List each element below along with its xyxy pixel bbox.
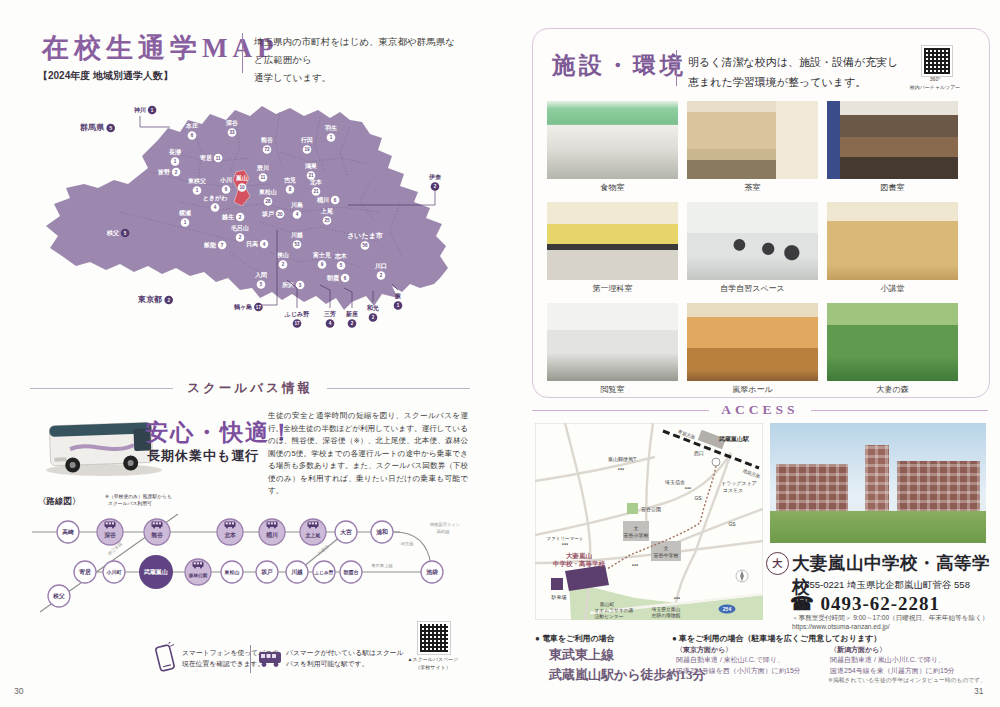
station-大宮: 大宮: [335, 521, 357, 543]
facility-photo-2: [687, 101, 818, 179]
facility-cell-9: 大妻の森: [827, 303, 958, 395]
access-map-label: 菅谷公園: [641, 506, 661, 513]
svg-text:越生: 越生: [221, 213, 235, 221]
access-header: ACCESS: [532, 402, 988, 418]
facility-cell-4: 第一理科室: [547, 202, 678, 294]
car-tokyo-line1: 関越自動車道 / 東松山I.C.で降り、: [676, 656, 784, 663]
page-number-left: 30: [14, 686, 23, 696]
svg-text:ふじみ野: ふじみ野: [284, 310, 309, 318]
svg-text:5: 5: [109, 126, 112, 131]
school-address: 〒 355-0221 埼玉県比企郡嵐山町菅谷 558: [792, 579, 970, 592]
car-niigata-line1: 関越自動車道 / 嵐山小川I.C.で降り、: [830, 656, 945, 663]
svg-text:東京都: 東京都: [137, 295, 162, 304]
svg-text:狭山: 狭山: [276, 251, 289, 258]
svg-text:嵐山: 嵐山: [235, 174, 248, 181]
access-map-label: ドラッグストア: [721, 480, 757, 486]
svg-text:6: 6: [334, 198, 337, 203]
office-hours: ＜事務室受付時間＞ 9:00～17:00（日曜祝日、年末年始等を除く）: [792, 614, 988, 623]
access-map-label: 嵐山町: [600, 601, 615, 607]
saitama-outline: [46, 106, 448, 310]
svg-text:2: 2: [351, 321, 354, 326]
svg-text:飯能: 飯能: [203, 241, 217, 249]
facility-caption: 自学自習スペース: [687, 283, 818, 294]
access-map-label: オオムラサキの森: [594, 608, 633, 613]
facility-title: 施設・環境: [552, 50, 687, 81]
access-map-label: 文: [664, 545, 669, 551]
access-map: 寄居方面武蔵嵐山駅西口池袋方面嵐山郵便局〒●●●埼玉信金●●●ドラッグストアコス…: [535, 423, 763, 620]
svg-text:2: 2: [434, 184, 437, 189]
svg-text:川口: 川口: [374, 262, 387, 270]
facility-cell-2: 茶室: [687, 101, 818, 193]
svg-text:浦和: 浦和: [375, 528, 388, 536]
facility-cell-1: 食物室: [547, 101, 678, 193]
svg-text:21: 21: [308, 173, 314, 178]
station-小川町: 小川町: [103, 561, 125, 583]
svg-text:7: 7: [221, 243, 224, 248]
svg-text:伊奈: 伊奈: [428, 174, 442, 181]
svg-text:熊谷: 熊谷: [261, 136, 273, 144]
svg-text:深谷: 深谷: [103, 532, 116, 539]
svg-text:川越線: 川越線: [316, 543, 330, 556]
station-北本: 北本: [217, 519, 243, 545]
station-川越: 川越: [286, 561, 308, 583]
facility-photo-6: [827, 202, 958, 280]
facility-grid: 食物室茶室図書室第一理科室自学自習スペース小講堂閲覧室嵐翠ホール大妻の森: [547, 101, 958, 395]
interview-footnote: ※掲載されている生徒の学年はインタビュー時のものです。: [700, 676, 986, 685]
station-寄居: 寄居: [74, 561, 96, 583]
school-building-photo: [770, 423, 986, 543]
title-divider: [242, 33, 243, 73]
facility-caption: 茶室: [687, 182, 818, 193]
svg-text:和光: 和光: [366, 304, 379, 312]
intro-line2: 通学しています。: [254, 72, 331, 83]
access-map-label: 文: [634, 525, 639, 531]
access-map-label: 嵐山郵便局〒: [608, 456, 638, 463]
svg-text:19: 19: [304, 147, 310, 152]
page-title: 在校生通学MAP: [42, 30, 278, 66]
station-高崎: 高崎: [57, 521, 79, 543]
svg-text:池袋: 池袋: [425, 569, 438, 576]
svg-text:小川町: 小川町: [106, 569, 122, 576]
vt-caption2: 校内バーチャルツアー: [910, 84, 961, 90]
svg-text:20: 20: [278, 212, 284, 217]
facility-caption: 嵐翠ホール: [687, 384, 818, 395]
intro-text: 埼玉県内の市町村をはじめ、東京都や群馬県など広範囲から 通学しています。: [254, 33, 464, 87]
svg-text:小川: 小川: [219, 176, 232, 184]
svg-text:羽生: 羽生: [324, 124, 338, 131]
svg-text:富士見: 富士見: [313, 251, 331, 259]
svg-text:さいたま市: さいたま市: [347, 231, 383, 240]
svg-text:4: 4: [263, 242, 266, 247]
facility-cell-7: 閲覧室: [547, 303, 678, 395]
svg-text:東松山: 東松山: [224, 569, 240, 575]
svg-text:朝霞台: 朝霞台: [343, 569, 359, 576]
access-map-label: 菅谷小学校: [624, 532, 649, 539]
svg-text:4: 4: [296, 212, 299, 217]
map-region-東京都: 東京都2: [137, 295, 173, 304]
intro-line1: 埼玉県内の市町村をはじめ、東京都や群馬県など広範囲から: [254, 36, 455, 65]
access-map-label: 254: [723, 606, 732, 612]
school-logo: 大: [766, 552, 789, 575]
svg-text:蕨: 蕨: [394, 292, 401, 300]
access-map-label: 大妻嵐山: [566, 552, 593, 560]
svg-text:5: 5: [260, 282, 263, 287]
map-subtitle: 【2024年度 地域別通学人数】: [38, 69, 173, 83]
car-tokyo-line2: 国道254号線を西（小川方面）に約15分: [676, 667, 801, 674]
svg-text:スクールバス利用可: スクールバス利用可: [108, 501, 152, 507]
access-map-label: ●●●: [562, 542, 568, 546]
qr-caption-line1: ▲スクールバスページ: [408, 656, 459, 662]
svg-text:5: 5: [124, 231, 127, 236]
svg-text:吉見: 吉見: [284, 176, 296, 184]
access-map-label: ●●●: [674, 596, 680, 600]
facility-lead2: 恵まれた学習環境が整っています。: [688, 76, 866, 88]
svg-text:秩父: 秩父: [52, 593, 65, 600]
map-region-群馬県: 群馬県5: [79, 123, 115, 132]
svg-text:33: 33: [229, 130, 235, 135]
svg-text:川島: 川島: [290, 201, 303, 209]
svg-text:53: 53: [294, 242, 300, 247]
svg-text:川越: 川越: [290, 569, 303, 576]
svg-text:武蔵嵐山: 武蔵嵐山: [143, 568, 168, 575]
access-map-label: 駐車場: [551, 594, 567, 601]
facility-cell-6: 小講堂: [827, 202, 958, 294]
vt-caption1: 360°: [930, 76, 940, 82]
busmark-icon: [258, 650, 282, 668]
virtual-tour-qr-code: [922, 46, 952, 76]
facility-lead: 明るく清潔な校内は、施設・設備が充実し 恵まれた学習環境が整っています。: [688, 52, 918, 93]
car-from-niigata: 〈新潟方面から〉 関越自動車道 / 嵐山小川I.C.で降り、 国道254号線を東…: [830, 645, 955, 677]
train-heading: ● 電車をご利用の場合: [535, 633, 615, 644]
bus-description: 生徒の安全と通学時間の短縮を図り、スクールバスを運行。全校生徒の半数ほどが利用し…: [268, 410, 468, 498]
svg-text:坂戸: 坂戸: [260, 568, 273, 575]
svg-text:森林公園: 森林公園: [188, 572, 208, 579]
svg-text:2: 2: [167, 298, 170, 303]
station-東松山: 東松山: [221, 561, 243, 583]
car-niigata-label: 〈新潟方面から〉: [830, 645, 955, 655]
facility-cell-3: 図書室: [827, 101, 958, 193]
svg-text:2: 2: [380, 273, 383, 278]
access-map-label: ●●●: [685, 486, 691, 490]
svg-text:所沢: 所沢: [281, 281, 294, 288]
facility-photo-8: [687, 303, 818, 381]
facility-photo-3: [827, 101, 958, 179]
svg-text:滑川: 滑川: [256, 164, 269, 172]
svg-text:秩父: 秩父: [106, 229, 120, 237]
schoolbus-qr-code: [418, 622, 450, 654]
station-森林公園: 森林公園: [185, 559, 211, 585]
facility-caption: 大妻の森: [827, 384, 958, 395]
commute-map: 群馬県5神川1本庄6深谷33熊谷72行田19羽生1鴻巣21長瀞1寄居11皆野2東…: [30, 92, 470, 372]
access-map-label: GS: [694, 495, 702, 501]
access-title: ACCESS: [721, 402, 798, 418]
svg-text:2: 2: [239, 235, 242, 240]
svg-text:深谷: 深谷: [225, 119, 238, 127]
map-region-神川: 神川1: [133, 106, 170, 127]
station-熊谷: 熊谷: [144, 519, 170, 545]
facility-caption: 食物室: [547, 182, 678, 193]
svg-text:1: 1: [196, 188, 199, 193]
svg-text:10: 10: [239, 185, 245, 190]
svg-text:熊谷: 熊谷: [151, 531, 163, 539]
station-坂戸: 坂戸: [256, 561, 278, 583]
brochure-spread: { "page_left": { "page_number": "30", "t…: [0, 0, 1000, 707]
svg-text:2: 2: [175, 170, 178, 175]
svg-text:21: 21: [313, 189, 319, 194]
facility-caption: 第一理科室: [547, 283, 678, 294]
svg-text:北本: 北本: [309, 178, 322, 186]
svg-text:桶川: 桶川: [316, 196, 329, 204]
svg-text:6: 6: [344, 276, 347, 281]
svg-text:北本: 北本: [223, 532, 236, 539]
station-ふじみ野: ふじみ野: [313, 561, 335, 583]
svg-text:行田: 行田: [300, 136, 313, 144]
schoolbus-qr-caption: ▲スクールバスページ （学校サイト）: [398, 656, 468, 671]
svg-text:東松山: 東松山: [258, 188, 277, 195]
bus-subcatch: 長期休業中も運行: [147, 447, 259, 465]
access-map-label: 武蔵嵐山駅: [718, 435, 750, 443]
svg-text:ふじみ野: ふじみ野: [314, 569, 334, 576]
svg-text:神川: 神川: [133, 106, 146, 113]
facility-caption: 小講堂: [827, 283, 958, 294]
station-朝霞台: 朝霞台: [340, 561, 362, 583]
station-池袋: 池袋: [421, 561, 443, 583]
svg-text:坂戸: 坂戸: [261, 210, 274, 217]
svg-text:埼京線: 埼京線: [400, 541, 415, 546]
access-map-label: 史跡の博物館: [652, 612, 681, 619]
svg-text:本庄: 本庄: [185, 122, 198, 129]
svg-text:朝霞: 朝霞: [326, 274, 339, 282]
facility-photo-4: [547, 202, 678, 280]
bus-section-header: スクールバス情報: [30, 380, 470, 397]
svg-text:1: 1: [397, 303, 400, 308]
facility-lead1: 明るく清潔な校内は、施設・設備が充実し: [688, 56, 899, 68]
svg-text:5: 5: [340, 263, 343, 268]
svg-text:東武東上線: 東武東上線: [371, 563, 393, 568]
access-map-label: GS: [728, 521, 736, 527]
busmark-note: バスマークが付いている駅はスクールバスを利用可能な駅です。: [286, 648, 406, 670]
route-diagram: 〈路線図〉 ※（登校便のみ）籠原駅からも スクールバス利用可 高崎深谷熊谷北本桶…: [30, 488, 470, 628]
svg-text:鴻巣: 鴻巣: [304, 162, 317, 170]
svg-text:25: 25: [324, 218, 330, 223]
facility-cell-8: 嵐翠ホール: [687, 303, 818, 395]
facility-caption: 閲覧室: [547, 384, 678, 395]
svg-text:大宮: 大宮: [339, 528, 352, 536]
school-phone: ☎ 0493-62-2281: [790, 592, 940, 615]
school-url: https://www.otsuma-ranzan.ed.jp/: [792, 623, 890, 630]
access-map-label: ファミリーマート: [546, 536, 583, 541]
svg-text:4: 4: [329, 321, 332, 326]
facility-photo-7: [547, 303, 678, 381]
access-map-label: 埼玉信金: [664, 479, 685, 486]
qr-caption-line2: （学校サイト）: [415, 664, 450, 670]
svg-text:入間: 入間: [254, 271, 267, 279]
facility-photo-1: [547, 101, 678, 179]
svg-text:2: 2: [282, 262, 285, 267]
svg-text:17: 17: [294, 321, 300, 326]
svg-text:28: 28: [265, 199, 271, 204]
access-map-label: 西口: [694, 450, 704, 457]
svg-text:三芳: 三芳: [324, 310, 336, 318]
facility-divider: [676, 50, 677, 86]
svg-text:横瀬: 横瀬: [178, 209, 191, 217]
station-武蔵嵐山: 武蔵嵐山: [139, 555, 173, 589]
svg-text:1: 1: [330, 135, 333, 140]
car-niigata-line2: 国道254号線を東（川越方面）に約15分: [830, 667, 955, 674]
bus-section-title: スクールバス情報: [187, 380, 312, 397]
svg-text:高崎線: 高崎線: [437, 529, 451, 534]
access-map-label: 埼玉県立嵐山: [651, 606, 681, 612]
svg-text:17: 17: [256, 305, 262, 310]
svg-text:北上尾: 北上尾: [305, 532, 321, 539]
facility-photo-9: [827, 303, 958, 381]
svg-text:長瀞: 長瀞: [168, 148, 181, 156]
facility-caption: 図書室: [827, 182, 958, 193]
svg-text:志木: 志木: [334, 252, 347, 260]
svg-text:新座: 新座: [345, 310, 358, 318]
smartphone-icon: [152, 642, 178, 674]
access-map-label: 菅谷中学校: [654, 552, 679, 559]
svg-text:6: 6: [225, 187, 228, 192]
svg-text:9: 9: [321, 262, 324, 267]
virtual-tour-caption: 360° 校内バーチャルツアー: [897, 76, 973, 91]
svg-text:1: 1: [184, 220, 187, 225]
svg-text:東秩父: 東秩父: [187, 177, 207, 185]
svg-text:72: 72: [264, 147, 270, 152]
svg-text:3: 3: [299, 283, 302, 288]
svg-text:※（登校便のみ）籠原駅からも: ※（登校便のみ）籠原駅からも: [105, 493, 172, 500]
car-from-tokyo: 〈東京方面から〉 関越自動車道 / 東松山I.C.で降り、 国道254号線を西（…: [676, 645, 801, 677]
train-line: 東武東上線: [549, 647, 614, 662]
svg-text:桶川: 桶川: [265, 531, 278, 539]
svg-text:皆野: 皆野: [158, 168, 170, 176]
facility-cell-5: 自学自習スペース: [687, 202, 818, 294]
svg-text:56: 56: [362, 243, 368, 248]
station-北上尾: 北上尾: [300, 519, 326, 545]
svg-text:8: 8: [289, 187, 292, 192]
access-map-label: コスモス: [723, 487, 743, 493]
svg-text:11: 11: [216, 156, 221, 161]
svg-text:日高: 日高: [246, 240, 258, 248]
svg-text:2: 2: [239, 215, 242, 220]
station-浦和: 浦和: [371, 521, 393, 543]
svg-text:毛呂山: 毛呂山: [230, 224, 249, 232]
svg-text:高崎: 高崎: [62, 528, 74, 536]
footnote-divider: [250, 645, 251, 673]
svg-text:寄居: 寄居: [199, 154, 212, 162]
svg-text:ときがわ: ときがわ: [203, 195, 228, 202]
svg-text:寄居: 寄居: [79, 568, 91, 576]
car-tokyo-label: 〈東京方面から〉: [676, 645, 801, 655]
svg-text:上尾: 上尾: [320, 207, 333, 215]
svg-text:2: 2: [372, 315, 375, 320]
svg-text:1: 1: [151, 108, 154, 113]
svg-text:湘南新宿ライン: 湘南新宿ライン: [430, 522, 460, 527]
station-桶川: 桶川: [259, 519, 285, 545]
access-map-label: ●●●: [618, 467, 624, 471]
svg-text:11: 11: [261, 175, 266, 180]
car-heading: ● 車をご利用の場合（駐車場を広くご用意しております）: [672, 633, 881, 644]
svg-text:4: 4: [214, 205, 217, 210]
access-map-label: ●●●: [632, 563, 638, 567]
access-map-label: 中学校・高等学校: [553, 560, 606, 568]
svg-text:川越: 川越: [290, 231, 303, 239]
route-heading: 〈路線図〉: [38, 496, 81, 506]
svg-text:群馬県: 群馬県: [79, 123, 105, 132]
svg-text:6: 6: [191, 133, 194, 138]
facility-photo-5: [687, 202, 818, 280]
svg-text:鶴ヶ島: 鶴ヶ島: [233, 303, 252, 311]
station-秩父: 秩父: [48, 585, 70, 607]
svg-text:1: 1: [174, 159, 177, 164]
page-number-right: 31: [974, 686, 983, 696]
